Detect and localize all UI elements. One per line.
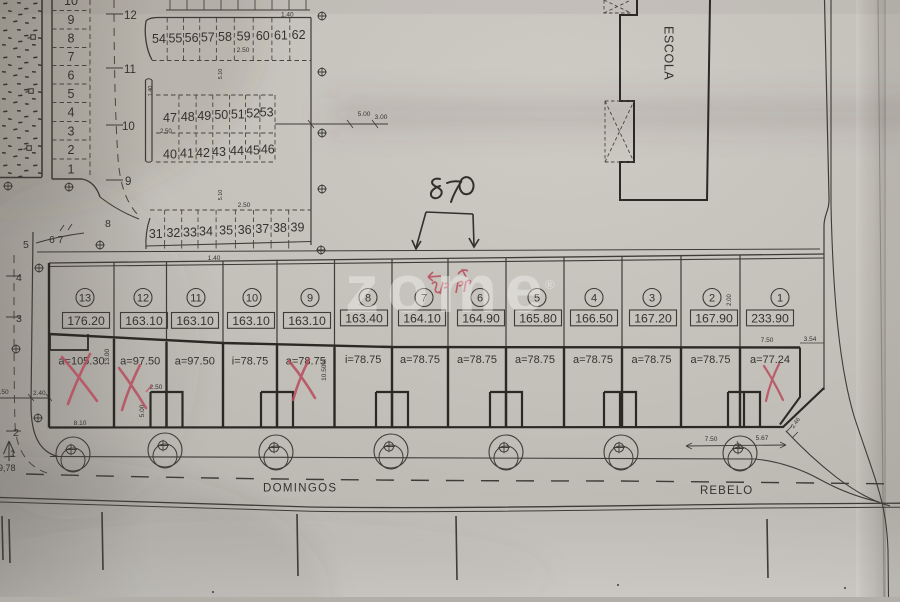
- svg-text:11: 11: [190, 292, 201, 304]
- svg-text:3: 3: [68, 125, 75, 139]
- svg-text:9: 9: [125, 176, 131, 188]
- svg-text:6: 6: [68, 69, 75, 83]
- svg-text:7: 7: [68, 50, 75, 64]
- svg-text:61: 61: [274, 29, 288, 43]
- svg-text:11: 11: [124, 64, 136, 76]
- svg-text:2: 2: [68, 143, 75, 157]
- svg-text:54: 54: [152, 32, 166, 46]
- svg-text:a=78.75: a=78.75: [631, 354, 671, 366]
- svg-text:1: 1: [777, 292, 783, 304]
- svg-text:i=78.75: i=78.75: [345, 354, 381, 366]
- svg-text:44: 44: [230, 144, 244, 158]
- svg-text:7.50: 7.50: [761, 337, 774, 344]
- svg-text:60: 60: [256, 29, 270, 43]
- svg-text:5: 5: [23, 239, 29, 251]
- svg-text:i=78.75: i=78.75: [232, 356, 268, 368]
- svg-text:9: 9: [68, 13, 75, 27]
- svg-text:167.20: 167.20: [634, 311, 672, 325]
- svg-text:62: 62: [292, 28, 306, 42]
- svg-text:4: 4: [16, 272, 22, 284]
- svg-text:59: 59: [237, 30, 251, 44]
- svg-text:163.10: 163.10: [176, 314, 214, 328]
- svg-text:39: 39: [291, 220, 305, 234]
- svg-text:9,78: 9,78: [0, 463, 16, 473]
- svg-text:3.54: 3.54: [804, 336, 817, 343]
- svg-text:34: 34: [199, 225, 213, 239]
- svg-text:40: 40: [163, 148, 177, 162]
- svg-text:163.10: 163.10: [125, 314, 163, 328]
- svg-text:13.00: 13.00: [104, 348, 111, 365]
- svg-text:10: 10: [64, 0, 78, 8]
- svg-text:8.10: 8.10: [74, 420, 87, 427]
- svg-text:3: 3: [16, 313, 22, 325]
- svg-text:53: 53: [260, 106, 274, 120]
- svg-text:DOMINGOS: DOMINGOS: [263, 483, 337, 495]
- svg-text:36: 36: [238, 223, 252, 237]
- svg-text:163.10: 163.10: [288, 314, 326, 328]
- svg-text:49: 49: [197, 109, 211, 123]
- svg-text:12: 12: [124, 10, 137, 22]
- svg-text:55: 55: [168, 32, 182, 46]
- svg-text:57: 57: [201, 31, 215, 45]
- svg-text:1: 1: [10, 448, 16, 460]
- svg-text:5.10: 5.10: [218, 69, 224, 80]
- svg-text:46: 46: [261, 143, 275, 157]
- svg-text:3: 3: [649, 292, 655, 304]
- svg-text:2.40: 2.40: [33, 390, 46, 397]
- svg-text:7.50: 7.50: [705, 436, 718, 443]
- svg-text:8: 8: [105, 218, 111, 230]
- svg-text:38: 38: [273, 221, 287, 235]
- svg-text:47: 47: [163, 111, 177, 125]
- svg-text:5: 5: [68, 87, 75, 101]
- svg-text:32: 32: [166, 226, 180, 240]
- svg-text:6 7: 6 7: [49, 234, 64, 246]
- svg-text:8: 8: [68, 32, 75, 46]
- svg-text:5.10: 5.10: [218, 190, 224, 201]
- svg-text:42: 42: [196, 146, 210, 160]
- svg-text:REBELO: REBELO: [700, 485, 753, 497]
- svg-text:163.10: 163.10: [232, 314, 270, 328]
- svg-text:10: 10: [122, 121, 135, 133]
- svg-text:176.20: 176.20: [67, 314, 105, 328]
- svg-text:45: 45: [246, 143, 260, 157]
- svg-text:13: 13: [79, 292, 91, 304]
- svg-text:a=77.24: a=77.24: [750, 354, 790, 366]
- svg-text:33: 33: [183, 225, 197, 239]
- svg-text:a=78.75: a=78.75: [690, 354, 730, 366]
- svg-text:41: 41: [180, 147, 194, 161]
- svg-text:5.00: 5.00: [358, 111, 371, 118]
- svg-text:ESCOLA: ESCOLA: [662, 26, 676, 80]
- svg-text:52: 52: [246, 106, 260, 120]
- svg-text:166.50: 166.50: [575, 311, 613, 325]
- svg-text:31: 31: [149, 227, 163, 241]
- svg-text:6.50: 6.50: [0, 389, 9, 396]
- svg-text:48: 48: [181, 110, 195, 124]
- svg-text:2.50: 2.50: [237, 47, 250, 54]
- svg-text:zome: zome: [345, 251, 551, 327]
- svg-text:167.90: 167.90: [695, 311, 733, 325]
- svg-text:a=78.75: a=78.75: [457, 354, 497, 366]
- svg-text:10.50m: 10.50m: [321, 359, 328, 381]
- svg-text:4: 4: [591, 292, 597, 304]
- svg-text:35: 35: [219, 224, 233, 238]
- svg-text:a=78.75: a=78.75: [515, 354, 555, 366]
- svg-text:2.00: 2.00: [727, 294, 733, 306]
- svg-text:9: 9: [307, 292, 313, 304]
- svg-text:5.67: 5.67: [756, 435, 769, 442]
- svg-text:1.40: 1.40: [148, 86, 154, 97]
- svg-text:37: 37: [255, 222, 269, 236]
- svg-text:43: 43: [212, 145, 226, 159]
- svg-text:12: 12: [137, 292, 149, 304]
- svg-text:56: 56: [185, 31, 199, 45]
- svg-text:2.50: 2.50: [160, 129, 172, 135]
- svg-text:4: 4: [68, 106, 75, 120]
- svg-text:50: 50: [214, 108, 228, 122]
- svg-text:10: 10: [246, 292, 258, 304]
- svg-text:51: 51: [231, 107, 245, 121]
- svg-text:3.00: 3.00: [375, 114, 388, 121]
- svg-text:®: ®: [545, 277, 555, 292]
- svg-text:2.50: 2.50: [238, 202, 251, 209]
- svg-text:2: 2: [709, 292, 715, 304]
- svg-text:233.90: 233.90: [751, 311, 789, 325]
- svg-text:58: 58: [218, 30, 232, 44]
- svg-text:a=97.50: a=97.50: [175, 356, 215, 368]
- svg-text:2: 2: [13, 427, 19, 439]
- svg-text:1: 1: [68, 163, 75, 177]
- svg-text:a=78.75: a=78.75: [573, 354, 613, 366]
- svg-text:a=78.75: a=78.75: [400, 354, 440, 366]
